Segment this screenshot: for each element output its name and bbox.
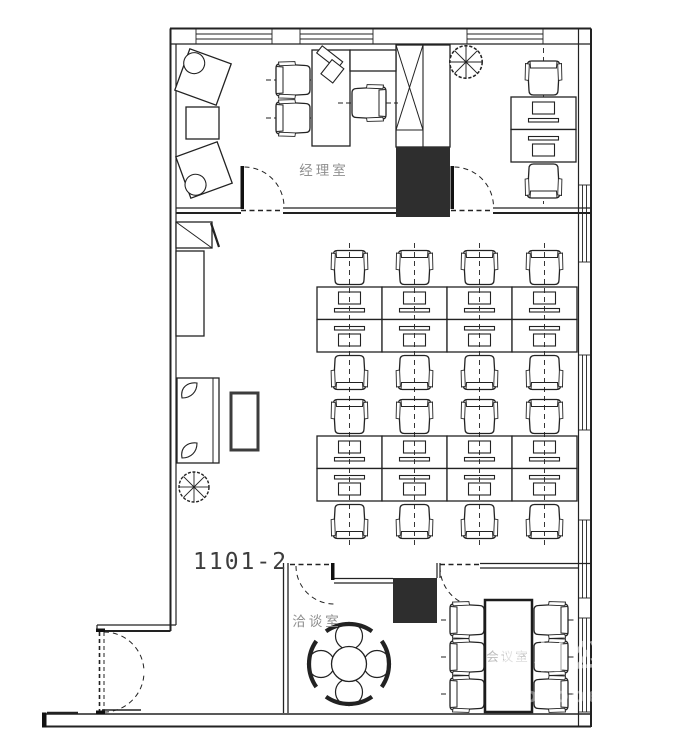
side-table — [186, 107, 219, 139]
watermark-subtext: tooopen.com — [512, 683, 678, 707]
floor-plan: 经理室 洽谈室 会议室 1101-2 素材公社 tooopen.com — [0, 0, 678, 749]
executive-chair — [352, 85, 386, 122]
entrance-double-door — [96, 629, 144, 715]
sofa — [177, 378, 219, 463]
guest-chair — [276, 62, 310, 99]
window-band — [196, 29, 543, 45]
structural-column — [393, 578, 437, 623]
floor-plan-page: 经理室 洽谈室 会议室 1101-2 素材公社 tooopen.com — [0, 0, 678, 749]
wardrobe-cabinet — [396, 45, 450, 147]
watermark: 素材公社 tooopen.com — [497, 637, 678, 707]
room-label-negotiation: 洽谈室 — [292, 613, 342, 630]
task-chair — [525, 164, 562, 198]
guest-chair — [276, 100, 310, 137]
round-table — [332, 647, 367, 682]
staff-office-door — [451, 166, 494, 211]
potted-tree — [179, 472, 209, 502]
task-chair — [525, 61, 562, 95]
coffee-table — [231, 393, 258, 450]
conference-chair — [534, 602, 568, 639]
credenza — [350, 50, 396, 71]
workstation-desk — [511, 130, 576, 163]
watermark-text: 素材公社 — [497, 637, 645, 676]
display-shelf — [176, 222, 219, 248]
negotiation-room-door — [290, 563, 335, 604]
interior-walls-north — [176, 208, 591, 213]
conference-chair — [450, 639, 484, 676]
staff-office-right — [450, 46, 576, 204]
structural-column — [396, 147, 450, 217]
conference-room-door — [440, 565, 480, 608]
lounge-chair — [174, 142, 232, 199]
potted-tree — [450, 46, 482, 78]
room-label-manager-office: 经理室 — [299, 162, 349, 179]
storage-cabinet — [176, 251, 204, 336]
unit-number-label: 1101-2 — [193, 549, 288, 575]
lounge-area — [176, 222, 258, 502]
manager-office-door — [241, 166, 285, 211]
open-office — [317, 243, 577, 548]
workstation-desk — [511, 97, 576, 130]
conference-chair — [450, 602, 484, 639]
negotiation-room-furniture — [308, 623, 391, 706]
window-band — [579, 185, 592, 712]
lounge-chair — [173, 48, 231, 105]
conference-chair — [450, 676, 484, 713]
manager-office-furniture — [173, 46, 398, 199]
